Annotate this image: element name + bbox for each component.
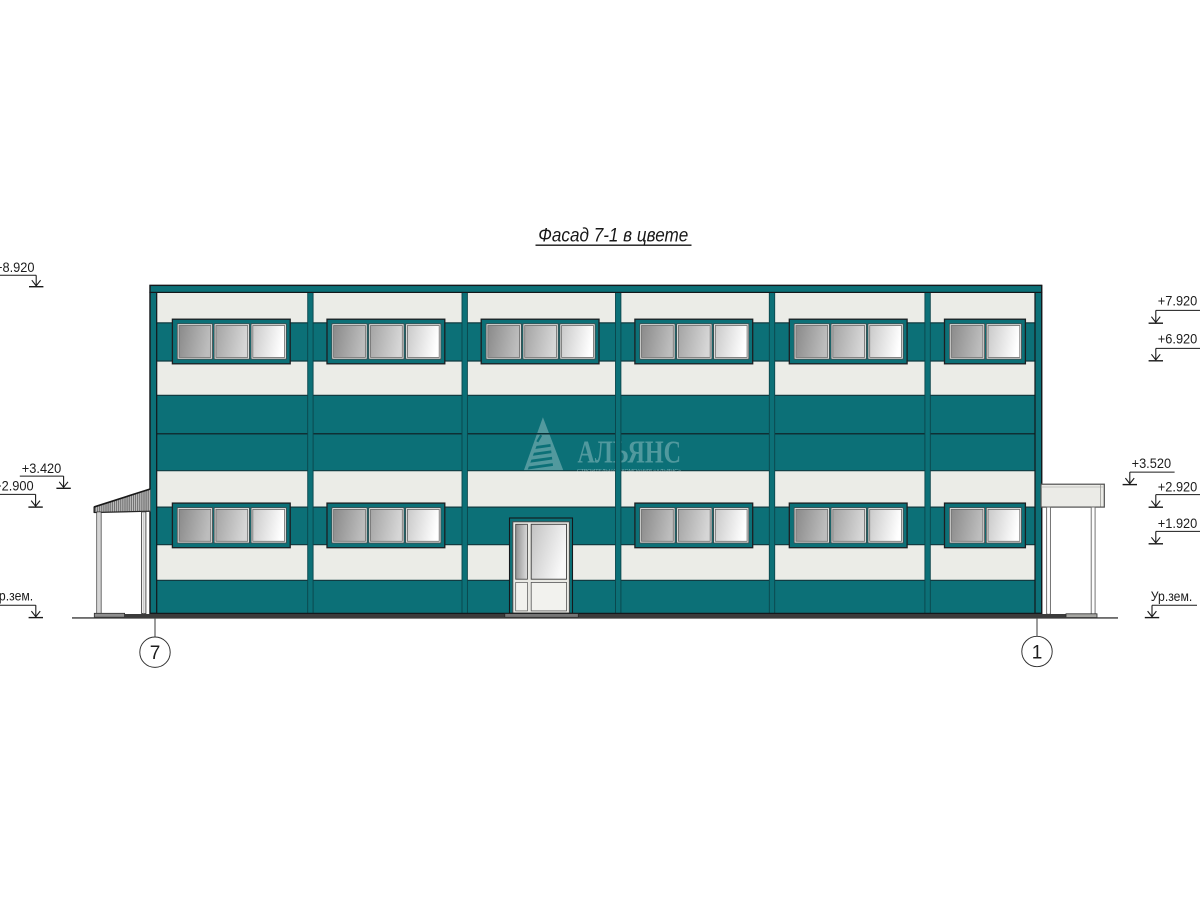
svg-text:+2.920: +2.920 <box>1158 478 1198 494</box>
svg-text:+3.520: +3.520 <box>1132 455 1172 471</box>
svg-text:Ур.зем.: Ур.зем. <box>1151 588 1193 604</box>
svg-text:7: 7 <box>150 643 161 664</box>
svg-text:Ур.зем.: Ур.зем. <box>0 587 33 603</box>
svg-text:+1.920: +1.920 <box>1158 515 1198 531</box>
svg-text:+3.420: +3.420 <box>22 460 62 476</box>
svg-text:АЛЬЯНС: АЛЬЯНС <box>578 433 682 469</box>
svg-text:+7.920: +7.920 <box>1158 293 1198 309</box>
svg-text:Фасад 7-1 в цвете: Фасад 7-1 в цвете <box>538 225 688 247</box>
svg-text:1: 1 <box>1032 642 1043 663</box>
svg-text:+8.920: +8.920 <box>0 259 35 275</box>
svg-text:СТРОИТЕЛЬНАЯ КОМПАНИЯ «АЛЬЯНС»: СТРОИТЕЛЬНАЯ КОМПАНИЯ «АЛЬЯНС» <box>577 468 682 473</box>
svg-text:+6.920: +6.920 <box>1158 331 1198 347</box>
svg-text:+2.900: +2.900 <box>0 478 34 494</box>
